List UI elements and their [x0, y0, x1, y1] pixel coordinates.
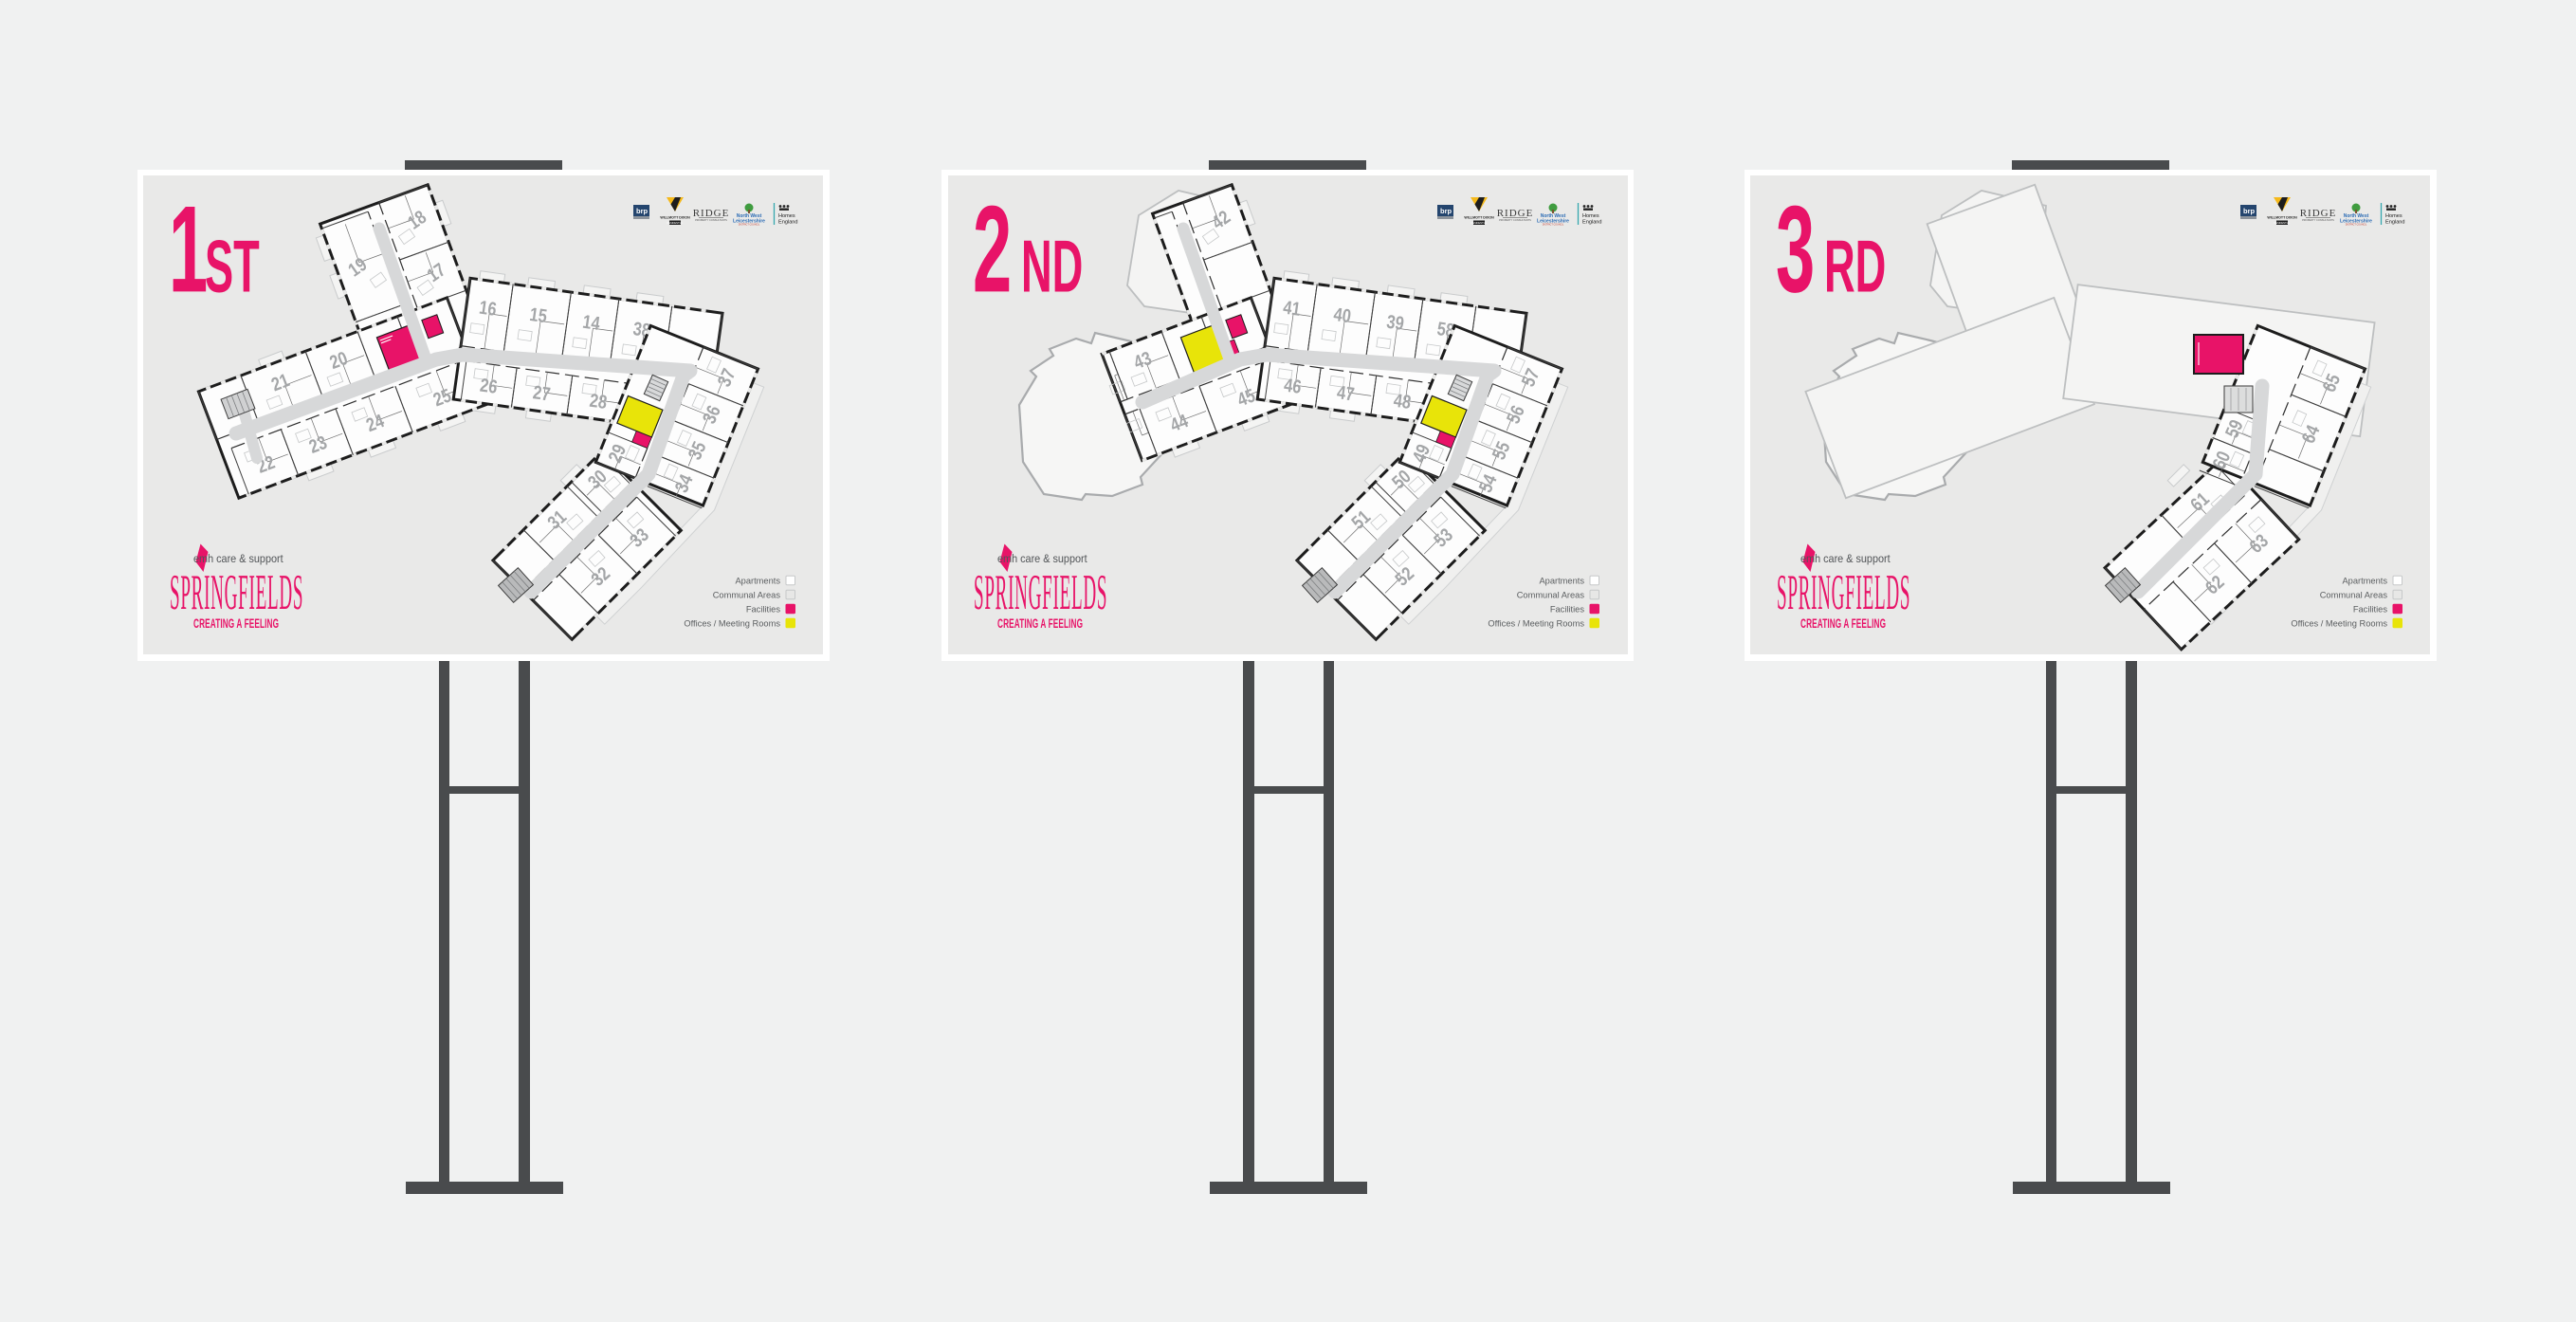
svg-text:Homes: Homes: [778, 213, 795, 219]
svg-text:Communal Areas: Communal Areas: [1517, 590, 1585, 599]
svg-text:Apartments: Apartments: [1539, 576, 1584, 585]
svg-text:PROPERTY CONSULTANTS: PROPERTY CONSULTANTS: [2302, 218, 2334, 222]
svg-text:RESIDENTIAL: RESIDENTIAL: [667, 221, 684, 225]
svg-text:2: 2: [973, 180, 1012, 318]
svg-text:DISTRICT COUNCIL: DISTRICT COUNCIL: [1543, 223, 1564, 226]
svg-text:WILLMOTT DIXON: WILLMOTT DIXON: [2267, 215, 2297, 219]
svg-text:PROPERTY CONSULTANTS: PROPERTY CONSULTANTS: [695, 218, 727, 222]
svg-text:DISTRICT COUNCIL: DISTRICT COUNCIL: [2345, 223, 2366, 226]
svg-text:RD: RD: [1824, 224, 1886, 307]
svg-text:DISTRICT COUNCIL: DISTRICT COUNCIL: [739, 223, 760, 226]
svg-text:Communal Areas: Communal Areas: [712, 590, 780, 599]
svg-text:48: 48: [1393, 389, 1413, 413]
svg-text:15: 15: [528, 303, 548, 326]
svg-text:England: England: [2385, 219, 2405, 225]
svg-text:ST: ST: [205, 224, 260, 307]
svg-text:England: England: [1582, 219, 1602, 225]
svg-text:16: 16: [478, 296, 498, 320]
svg-text:emh care & support: emh care & support: [997, 553, 1087, 564]
svg-text:SPRINGFIELDS: SPRINGFIELDS: [974, 564, 1107, 620]
svg-text:SPRINGFIELDS: SPRINGFIELDS: [1777, 564, 1910, 620]
svg-text:RIDGE: RIDGE: [2299, 208, 2336, 219]
svg-text:Apartments: Apartments: [735, 576, 780, 585]
svg-text:CREATING A FEELING: CREATING A FEELING: [193, 617, 279, 631]
svg-text:Facilities: Facilities: [746, 604, 781, 614]
svg-text:CREATING A FEELING: CREATING A FEELING: [997, 617, 1083, 631]
svg-text:WILLMOTT DIXON: WILLMOTT DIXON: [660, 215, 690, 219]
svg-text:Offices / Meeting Rooms: Offices / Meeting Rooms: [684, 618, 780, 628]
svg-text:Offices / Meeting Rooms: Offices / Meeting Rooms: [2291, 618, 2387, 628]
svg-text:40: 40: [1332, 303, 1352, 326]
svg-text:brp: brp: [1440, 207, 1452, 215]
svg-text:26: 26: [479, 374, 499, 397]
svg-text:3: 3: [1776, 180, 1815, 318]
svg-text:brp: brp: [636, 207, 649, 215]
svg-text:ND: ND: [1021, 224, 1083, 307]
svg-text:Homes: Homes: [1582, 213, 1599, 219]
svg-text:39: 39: [1385, 310, 1405, 334]
svg-text:CREATING A FEELING: CREATING A FEELING: [1800, 617, 1886, 631]
svg-text:emh care & support: emh care & support: [1800, 553, 1891, 564]
svg-text:emh care & support: emh care & support: [193, 553, 283, 564]
svg-text:28: 28: [588, 389, 608, 413]
svg-text:PROPERTY CONSULTANTS: PROPERTY CONSULTANTS: [1499, 218, 1531, 222]
svg-text:Homes: Homes: [2385, 213, 2402, 219]
svg-text:46: 46: [1283, 374, 1303, 397]
svg-text:brp: brp: [2243, 207, 2256, 215]
svg-text:SPRINGFIELDS: SPRINGFIELDS: [170, 564, 303, 620]
svg-text:27: 27: [532, 380, 552, 404]
svg-text:RIDGE: RIDGE: [692, 208, 729, 219]
svg-text:WILLMOTT DIXON: WILLMOTT DIXON: [1464, 215, 1494, 219]
svg-text:41: 41: [1282, 296, 1302, 320]
svg-text:47: 47: [1336, 380, 1356, 404]
svg-text:Apartments: Apartments: [2342, 576, 2387, 585]
svg-text:Facilities: Facilities: [2352, 604, 2387, 614]
svg-text:1: 1: [169, 180, 208, 318]
svg-text:Communal Areas: Communal Areas: [2319, 590, 2387, 599]
svg-text:Facilities: Facilities: [1550, 604, 1585, 614]
svg-text:RIDGE: RIDGE: [1497, 208, 1534, 219]
svg-text:Offices / Meeting Rooms: Offices / Meeting Rooms: [1488, 618, 1584, 628]
svg-text:RESIDENTIAL: RESIDENTIAL: [1471, 221, 1488, 225]
svg-text:England: England: [778, 219, 798, 225]
svg-text:RESIDENTIAL: RESIDENTIAL: [2274, 221, 2291, 225]
